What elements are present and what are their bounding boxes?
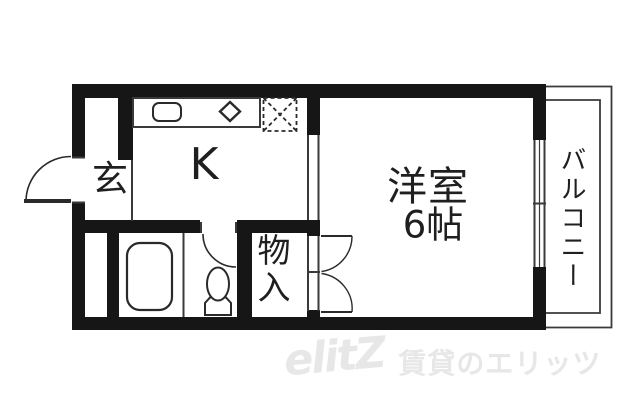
room-size-label: 6帖 bbox=[403, 207, 464, 244]
bathtub-icon bbox=[127, 243, 172, 310]
main-room-label: 洋室 bbox=[387, 167, 469, 207]
wall-right-upper bbox=[533, 84, 546, 140]
wall-closet-left bbox=[237, 233, 252, 317]
floorplan-image: 玄 K 洋室 6帖 物入 バルコニー elitZ 賃貸のエリッツ bbox=[0, 0, 640, 416]
closet-label: 物入 bbox=[255, 233, 288, 307]
wall-strip-divider bbox=[107, 233, 119, 317]
wall-kitchen-room-mid bbox=[307, 220, 320, 236]
wall-middle-left bbox=[85, 220, 200, 233]
wall-top bbox=[72, 84, 546, 98]
wall-kitchen-room-stub bbox=[307, 310, 320, 317]
window-icon bbox=[533, 140, 546, 267]
closet-double-door-icon bbox=[321, 236, 352, 312]
entrance-door-arc bbox=[26, 157, 71, 202]
watermark-logo: elitZ bbox=[282, 328, 386, 387]
wall-bottom bbox=[72, 317, 546, 330]
wall-left-upper bbox=[72, 84, 85, 158]
toilet-door-arc bbox=[203, 234, 236, 267]
stove-icon bbox=[220, 102, 240, 121]
kitchen-label: K bbox=[190, 143, 219, 187]
wall-kitchen-room-upper bbox=[307, 98, 320, 135]
entrance-label: 玄 bbox=[92, 162, 128, 198]
balcony-label: バルコニー bbox=[558, 146, 584, 291]
wall-left-lower bbox=[72, 202, 85, 330]
sink-icon bbox=[153, 103, 181, 121]
wall-right-lower bbox=[533, 267, 546, 330]
watermark: elitZ 賃貸のエリッツ bbox=[284, 332, 601, 382]
toilet-bowl-icon bbox=[207, 268, 229, 301]
refrigerator-space-icon bbox=[264, 98, 297, 131]
watermark-text: 賃貸のエリッツ bbox=[398, 342, 601, 382]
wall-entrance-stub bbox=[118, 98, 133, 160]
